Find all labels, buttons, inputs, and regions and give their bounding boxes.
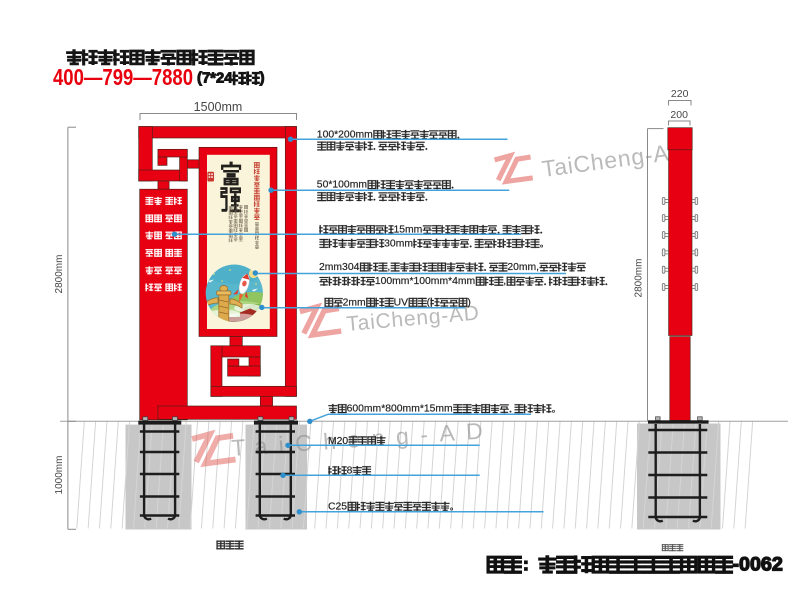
svg-text:UV: UV [394, 297, 408, 308]
svg-text:): ) [467, 297, 470, 308]
svg-text:,: , [503, 276, 506, 287]
svg-text:1500mm: 1500mm [194, 100, 243, 114]
svg-text:400—799—7880: 400—799—7880 [53, 64, 193, 90]
svg-text:-0062: -0062 [732, 553, 782, 575]
svg-text:600mm*800mm*15mm: 600mm*800mm*15mm [347, 404, 453, 415]
svg-text:200: 200 [670, 109, 688, 121]
svg-text:C25: C25 [328, 501, 347, 512]
svg-text:,: , [387, 262, 390, 273]
svg-text:2800mm: 2800mm [634, 259, 645, 298]
svg-text:20mm,: 20mm, [507, 262, 539, 273]
svg-text:30mm: 30mm [384, 238, 413, 249]
svg-text:50*100mm: 50*100mm [317, 180, 367, 191]
svg-text:2mm: 2mm [343, 297, 366, 308]
svg-text:2mm304: 2mm304 [319, 262, 360, 273]
svg-text:100mm*100mm*4mm: 100mm*100mm*4mm [375, 276, 475, 287]
svg-text:(: ( [427, 297, 431, 308]
svg-text:(7*24: (7*24 [197, 71, 233, 87]
svg-text:): ) [260, 71, 265, 87]
svg-text:220: 220 [671, 88, 689, 100]
svg-text:2800mm: 2800mm [54, 255, 65, 294]
svg-text:1000mm: 1000mm [54, 456, 65, 495]
